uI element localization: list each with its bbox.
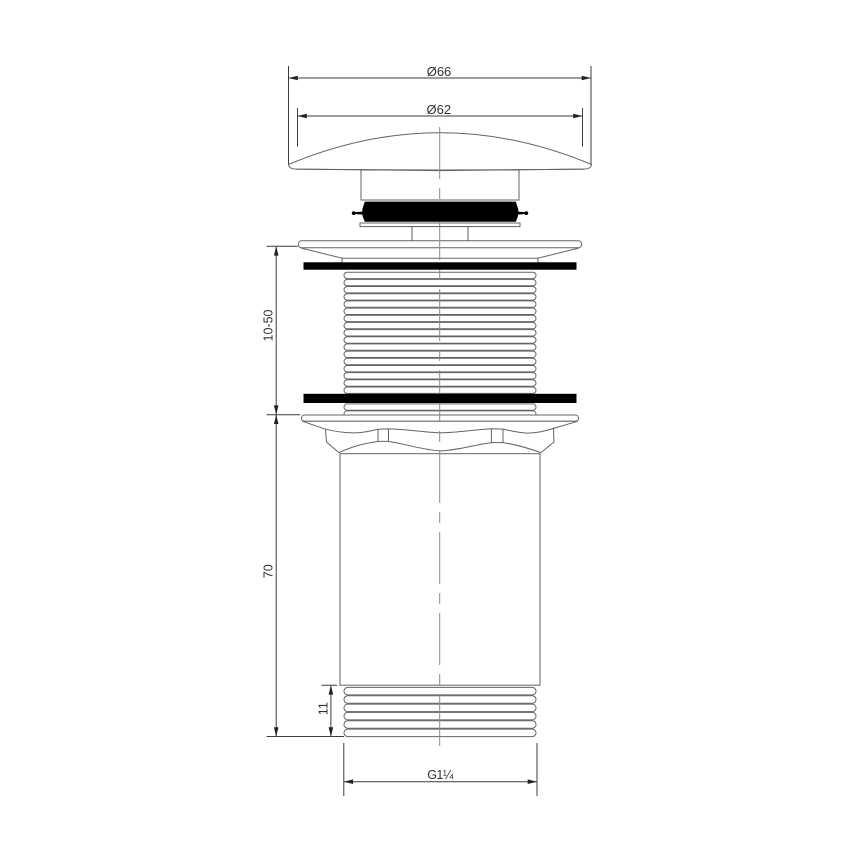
- svg-text:Ø62: Ø62: [427, 102, 452, 117]
- svg-text:11: 11: [317, 702, 331, 715]
- svg-text:G1¼: G1¼: [427, 768, 454, 782]
- svg-text:Ø66: Ø66: [427, 64, 452, 79]
- svg-text:10-50: 10-50: [262, 309, 276, 341]
- svg-text:70: 70: [262, 564, 276, 578]
